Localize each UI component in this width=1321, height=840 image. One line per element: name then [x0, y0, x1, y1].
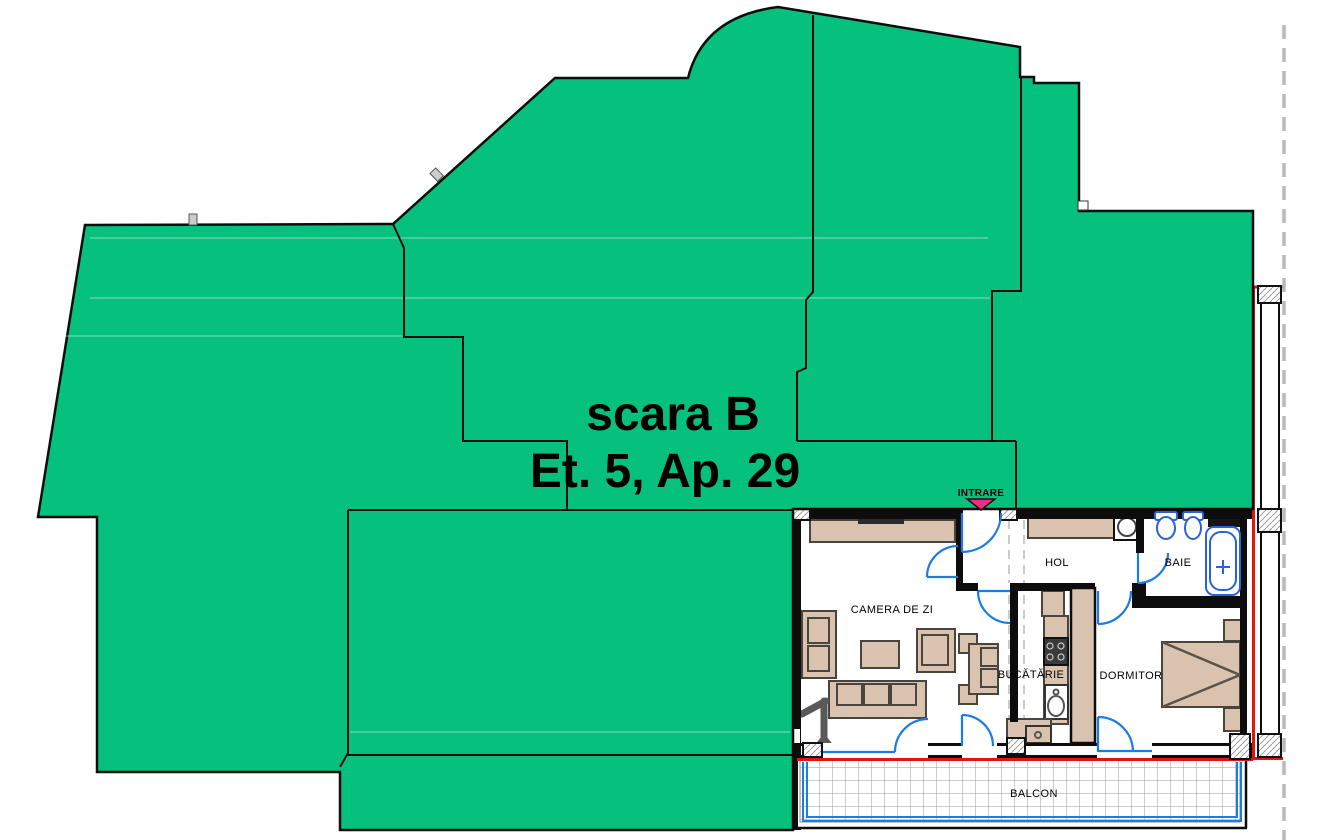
- label-kitchen: BUCĂTĂRIE: [998, 668, 1065, 681]
- balcony-door-opening-living: [823, 743, 928, 758]
- label-bathroom: BAIE: [1165, 557, 1192, 569]
- bidet-icon: [1183, 512, 1203, 539]
- column: [1230, 734, 1250, 759]
- column: [1258, 286, 1281, 303]
- balcony-door-opening-dining: [962, 743, 997, 758]
- kitchen-door-opening: [978, 583, 1010, 591]
- dining-chair: [981, 648, 998, 666]
- stove: [1044, 638, 1068, 665]
- label-balcony: BALCON: [1010, 788, 1058, 800]
- fridge: [1042, 591, 1064, 616]
- sofa-cushion: [864, 684, 889, 705]
- wall-bath-left: [1136, 513, 1144, 553]
- sofa-cushion: [891, 684, 916, 705]
- bed: [1162, 642, 1240, 707]
- toilet-icon: [1155, 512, 1177, 539]
- sofa-cushion: [837, 684, 862, 705]
- dining-chair: [981, 669, 998, 687]
- coffee-table: [861, 641, 899, 668]
- wall-kitchen-left: [1010, 588, 1018, 722]
- entrance-label: INTRARE: [958, 488, 1005, 499]
- armchair-right-cushion: [922, 635, 948, 665]
- title-line1: scara B: [586, 388, 759, 441]
- bathtub-icon: [1206, 527, 1240, 595]
- wall-right-inner: [1240, 509, 1247, 759]
- tick-icon: [189, 214, 197, 225]
- label-hallway: HOL: [1045, 557, 1069, 569]
- nightstand: [1224, 620, 1242, 641]
- wall-bath-bedroom: [1136, 596, 1240, 608]
- nightstand: [1224, 708, 1242, 731]
- armchair-left-cushion: [808, 618, 829, 643]
- bedroom-door-opening: [1095, 583, 1132, 591]
- label-bedroom: DORMITOR: [1100, 670, 1163, 682]
- column: [1258, 509, 1281, 532]
- tick-icon: [1078, 201, 1088, 210]
- floor-plan-svg: CAMERA DE ZI HOL BAIE BUCĂTĂRIE DORMITOR…: [0, 0, 1321, 840]
- column: [803, 743, 822, 757]
- label-living-room: CAMERA DE ZI: [851, 604, 933, 616]
- column: [1007, 738, 1025, 754]
- column: [1258, 734, 1281, 757]
- floor-plan-page: CAMERA DE ZI HOL BAIE BUCĂTĂRIE DORMITOR…: [0, 0, 1321, 840]
- kitchen-cabinet-small: [1026, 726, 1051, 743]
- title-line2: Et. 5, Ap. 29: [530, 445, 800, 498]
- wall-left-window: [794, 729, 800, 744]
- armchair-left-cushion: [808, 646, 829, 671]
- wall-kitchen-bedroom: [1071, 588, 1095, 743]
